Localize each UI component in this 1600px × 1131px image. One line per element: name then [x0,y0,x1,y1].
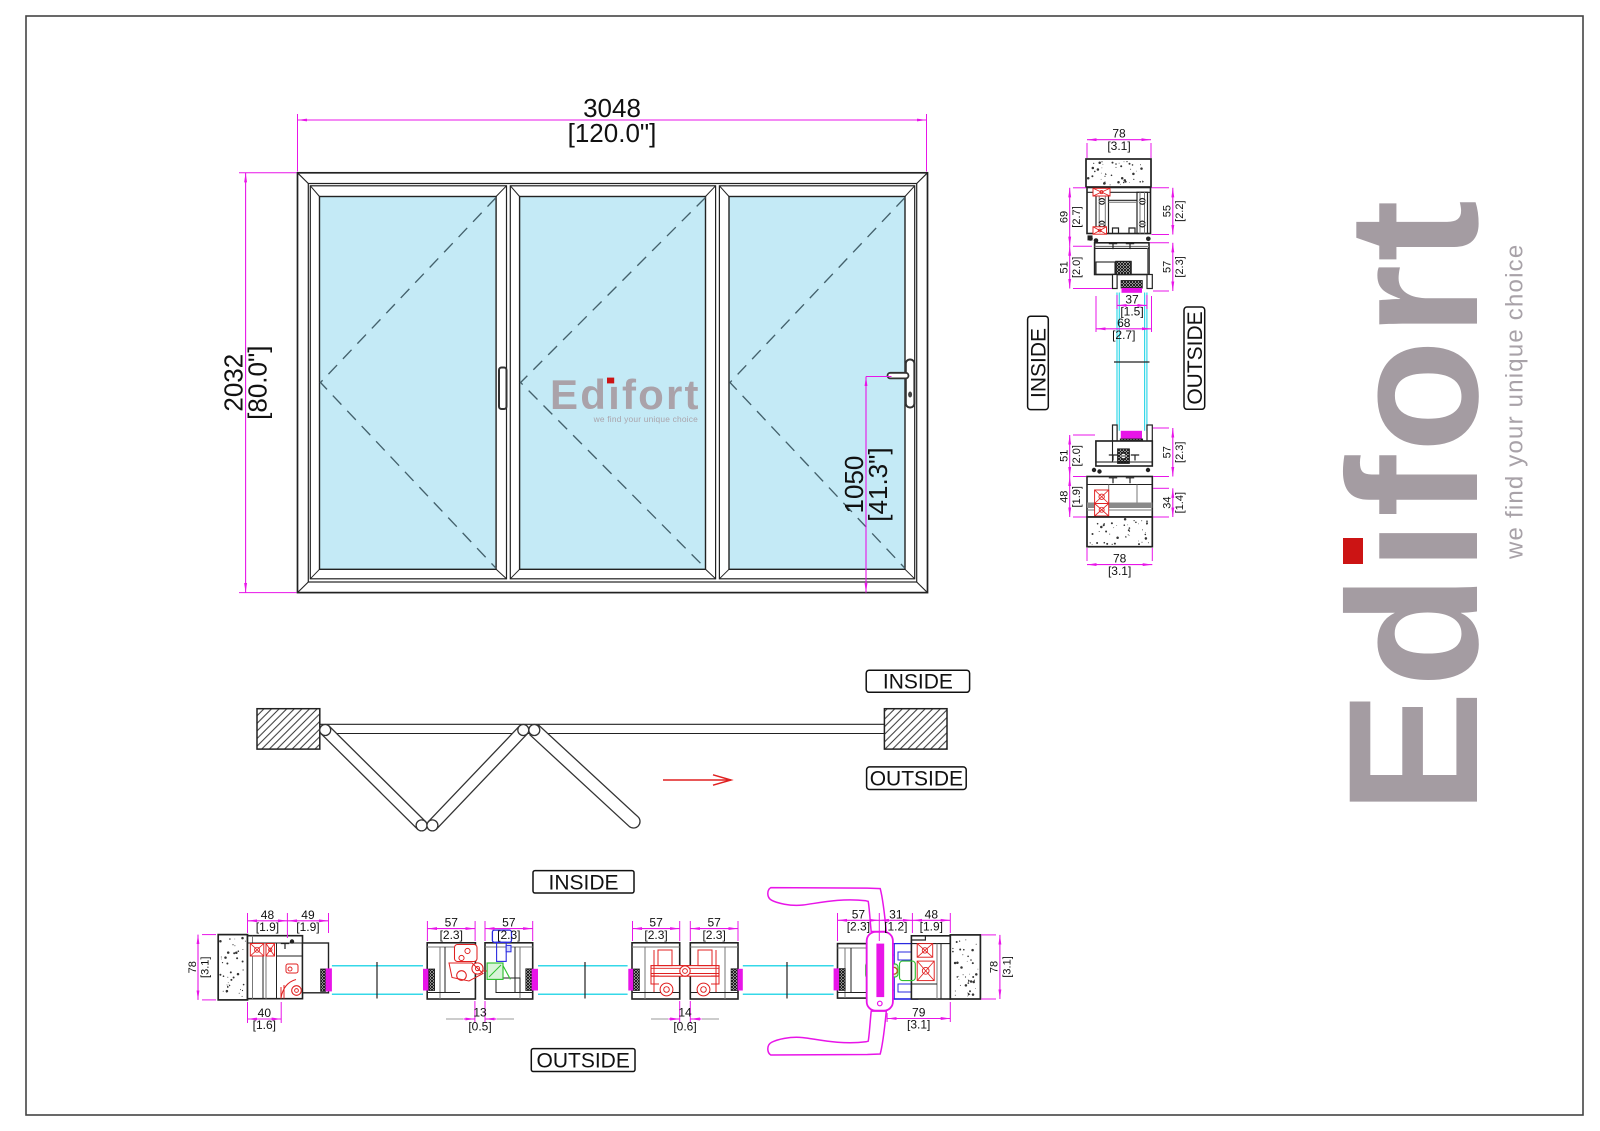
svg-text:[2.3]: [2.3] [1174,442,1186,463]
svg-text:57: 57 [1162,261,1174,273]
svg-text:INSIDE: INSIDE [548,871,618,894]
svg-text:Edıfort: Edıfort [550,371,701,418]
svg-text:INSIDE: INSIDE [883,671,953,694]
svg-text:55: 55 [1162,205,1174,217]
svg-text:OUTSIDE: OUTSIDE [870,768,963,791]
svg-text:13: 13 [473,1006,487,1020]
svg-text:[2.3]: [2.3] [1174,256,1186,277]
svg-text:48: 48 [1059,491,1071,503]
svg-text:[2.3]: [2.3] [497,928,520,942]
svg-text:[2.7]: [2.7] [1112,328,1135,342]
svg-text:78: 78 [989,961,1001,973]
svg-text:[3.1]: [3.1] [1107,139,1130,153]
svg-text:INSIDE: INSIDE [1028,328,1051,398]
svg-text:[2.0]: [2.0] [1071,257,1083,278]
svg-text:we find your unique choice: we find your unique choice [1502,244,1529,560]
svg-text:we find your unique choice: we find your unique choice [593,414,699,424]
svg-text:[1.9]: [1.9] [296,920,319,934]
svg-text:[80.0"]: [80.0"] [243,346,273,420]
svg-text:Edıfort: Edıfort [1311,197,1517,814]
svg-text:[0.5]: [0.5] [468,1020,491,1034]
svg-text:78: 78 [187,961,199,973]
svg-text:[2.3]: [2.3] [440,928,463,942]
svg-text:[2.3]: [2.3] [847,920,870,934]
svg-text:[2.0]: [2.0] [1071,445,1083,466]
svg-text:[3.1]: [3.1] [199,957,211,978]
svg-text:[1.9]: [1.9] [256,920,279,934]
svg-text:14: 14 [678,1006,692,1020]
svg-text:[3.1]: [3.1] [907,1018,930,1032]
svg-text:[3.1]: [3.1] [1001,956,1013,977]
svg-text:[1.6]: [1.6] [253,1018,276,1032]
svg-text:[3.1]: [3.1] [1108,564,1131,578]
svg-text:OUTSIDE: OUTSIDE [537,1050,630,1073]
svg-text:51: 51 [1059,450,1071,462]
svg-text:[2.3]: [2.3] [702,928,725,942]
svg-text:OUTSIDE: OUTSIDE [1184,311,1207,404]
svg-text:[1.9]: [1.9] [1071,486,1083,507]
svg-text:34: 34 [1162,497,1174,509]
svg-text:[41.3"]: [41.3"] [863,447,893,521]
svg-text:[1.4]: [1.4] [1174,492,1186,513]
svg-text:[1.2]: [1.2] [884,920,907,934]
svg-text:69: 69 [1059,211,1071,223]
svg-text:[2.2]: [2.2] [1174,200,1186,221]
svg-text:[2.3]: [2.3] [644,928,667,942]
svg-text:[2.7]: [2.7] [1071,206,1083,227]
svg-text:51: 51 [1059,261,1071,273]
svg-text:[120.0"]: [120.0"] [568,118,657,148]
svg-text:[0.6]: [0.6] [673,1020,696,1034]
svg-text:[1.9]: [1.9] [920,920,943,934]
svg-text:57: 57 [1162,446,1174,458]
